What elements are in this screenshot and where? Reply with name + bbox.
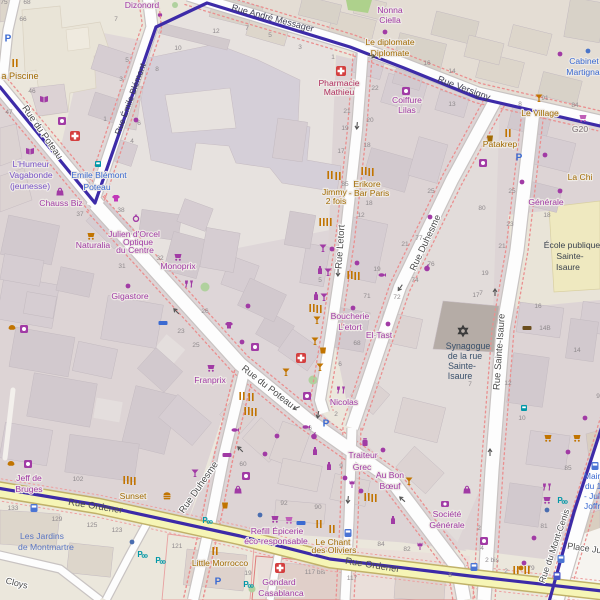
svg-text:Au Bon: Au Bon bbox=[376, 470, 404, 480]
svg-text:Boucherie: Boucherie bbox=[331, 311, 370, 321]
svg-text:Emile Blémont: Emile Blémont bbox=[71, 170, 127, 180]
svg-text:85: 85 bbox=[341, 181, 349, 188]
svg-text:Monoprix: Monoprix bbox=[160, 261, 196, 271]
svg-text:17: 17 bbox=[337, 148, 345, 155]
svg-text:8: 8 bbox=[155, 66, 159, 73]
svg-text:Gigastore: Gigastore bbox=[111, 291, 148, 301]
svg-text:60: 60 bbox=[239, 461, 247, 468]
svg-text:Traiteur: Traiteur bbox=[348, 450, 377, 460]
svg-text:2: 2 bbox=[504, 568, 508, 575]
svg-text:18: 18 bbox=[365, 200, 373, 207]
svg-text:P: P bbox=[137, 550, 143, 559]
svg-text:Grec: Grec bbox=[353, 462, 372, 472]
svg-text:Sainte-: Sainte- bbox=[448, 361, 476, 371]
svg-text:68: 68 bbox=[353, 340, 361, 347]
svg-text:1: 1 bbox=[103, 116, 107, 123]
svg-text:38: 38 bbox=[117, 207, 125, 214]
svg-text:32: 32 bbox=[156, 255, 164, 262]
svg-text:37: 37 bbox=[76, 211, 84, 218]
svg-text:Sunset: Sunset bbox=[120, 491, 147, 501]
svg-text:75: 75 bbox=[0, 0, 8, 6]
svg-text:84: 84 bbox=[377, 541, 385, 548]
svg-text:Dizonord: Dizonord bbox=[125, 0, 160, 10]
svg-text:Diplomate: Diplomate bbox=[371, 48, 410, 58]
svg-text:Société: Société bbox=[433, 509, 462, 519]
svg-text:2 bis: 2 bis bbox=[485, 557, 499, 564]
svg-text:81: 81 bbox=[540, 523, 548, 530]
svg-text:18: 18 bbox=[363, 142, 371, 149]
svg-text:du Centre: du Centre bbox=[116, 245, 154, 255]
svg-text:Générale: Générale bbox=[528, 197, 564, 207]
svg-text:Générale: Générale bbox=[429, 520, 465, 530]
svg-text:102: 102 bbox=[73, 476, 84, 483]
svg-text:77: 77 bbox=[415, 235, 423, 242]
svg-text:Mathieu: Mathieu bbox=[324, 87, 355, 97]
svg-text:25: 25 bbox=[192, 342, 200, 349]
svg-text:92: 92 bbox=[280, 500, 288, 507]
svg-text:21: 21 bbox=[401, 241, 409, 248]
svg-text:25: 25 bbox=[427, 188, 435, 195]
svg-text:Joffr: Joffr bbox=[584, 501, 600, 511]
svg-text:P: P bbox=[557, 496, 563, 505]
svg-text:46: 46 bbox=[28, 88, 36, 95]
svg-text:8: 8 bbox=[448, 572, 452, 579]
svg-text:66: 66 bbox=[19, 16, 27, 23]
svg-text:22: 22 bbox=[371, 85, 379, 92]
svg-text:3: 3 bbox=[119, 76, 123, 83]
svg-text:19: 19 bbox=[341, 125, 349, 132]
svg-text:133: 133 bbox=[8, 505, 19, 512]
svg-text:117 bis: 117 bis bbox=[305, 569, 326, 576]
svg-text:72: 72 bbox=[393, 294, 401, 301]
svg-text:Bœuf: Bœuf bbox=[379, 481, 401, 491]
svg-text:14: 14 bbox=[448, 68, 456, 75]
svg-text:68: 68 bbox=[23, 0, 31, 6]
svg-text:éco-responsable: éco-responsable bbox=[244, 536, 308, 546]
svg-text:Vagabonde: Vagabonde bbox=[9, 170, 53, 180]
svg-text:Naturalia: Naturalia bbox=[76, 240, 111, 250]
svg-text:- Jule: - Jule bbox=[584, 491, 600, 501]
svg-text:80: 80 bbox=[478, 205, 486, 212]
svg-text:84: 84 bbox=[571, 102, 579, 109]
svg-text:117: 117 bbox=[347, 575, 358, 582]
svg-text:23: 23 bbox=[506, 221, 514, 228]
svg-text:4: 4 bbox=[480, 545, 484, 552]
svg-text:21: 21 bbox=[498, 243, 506, 250]
svg-text:91: 91 bbox=[541, 95, 549, 102]
svg-text:- Bar Paris: - Bar Paris bbox=[349, 188, 390, 198]
svg-text:2 fois: 2 fois bbox=[326, 196, 347, 206]
svg-text:P: P bbox=[323, 418, 330, 429]
svg-text:L'etort: L'etort bbox=[338, 322, 362, 332]
svg-text:10: 10 bbox=[518, 415, 526, 422]
svg-text:16: 16 bbox=[423, 60, 431, 67]
svg-text:Martigna: Martigna bbox=[566, 67, 600, 77]
svg-text:Jeff de: Jeff de bbox=[16, 473, 42, 483]
svg-text:Gondard: Gondard bbox=[262, 577, 296, 587]
svg-text:4: 4 bbox=[130, 138, 134, 145]
svg-text:21: 21 bbox=[343, 108, 351, 115]
svg-text:7: 7 bbox=[468, 381, 472, 388]
svg-text:G20: G20 bbox=[572, 124, 588, 134]
svg-text:47: 47 bbox=[5, 109, 13, 116]
svg-text:Isaure: Isaure bbox=[556, 262, 580, 272]
svg-text:(jeunesse): (jeunesse) bbox=[10, 181, 50, 191]
svg-text:12: 12 bbox=[212, 28, 220, 35]
svg-text:L'Humeur: L'Humeur bbox=[13, 159, 50, 169]
svg-text:6: 6 bbox=[308, 425, 312, 432]
svg-text:2: 2 bbox=[477, 525, 481, 532]
svg-text:de la rue: de la rue bbox=[448, 351, 482, 361]
svg-text:Synagogue: Synagogue bbox=[446, 341, 491, 351]
svg-text:25: 25 bbox=[508, 188, 516, 195]
svg-text:Nicolas: Nicolas bbox=[330, 397, 358, 407]
svg-text:Lilas: Lilas bbox=[398, 105, 416, 115]
svg-text:Mair: Mair bbox=[584, 471, 600, 481]
svg-text:Little Morrocco: Little Morrocco bbox=[192, 558, 249, 568]
svg-text:P: P bbox=[5, 33, 12, 44]
svg-text:23: 23 bbox=[177, 328, 185, 335]
svg-text:du 1: du 1 bbox=[585, 481, 600, 491]
svg-text:7: 7 bbox=[479, 290, 483, 297]
svg-text:École publique: École publique bbox=[544, 240, 600, 250]
svg-text:13: 13 bbox=[448, 101, 456, 108]
svg-text:19: 19 bbox=[481, 270, 489, 277]
svg-text:La Chi: La Chi bbox=[568, 172, 593, 182]
svg-text:Isaure: Isaure bbox=[448, 371, 473, 381]
svg-text:Poteau: Poteau bbox=[83, 182, 110, 192]
svg-text:9: 9 bbox=[596, 393, 600, 400]
svg-text:Nonna: Nonna bbox=[377, 5, 403, 15]
svg-text:31: 31 bbox=[118, 263, 126, 270]
svg-text:20: 20 bbox=[366, 117, 374, 124]
svg-text:Le diplomate: Le diplomate bbox=[365, 37, 414, 47]
svg-text:7: 7 bbox=[114, 16, 118, 23]
svg-text:Refill Épicerie: Refill Épicerie bbox=[251, 526, 304, 536]
svg-text:Casablanca: Casablanca bbox=[258, 588, 304, 598]
svg-text:de Montmartre: de Montmartre bbox=[18, 542, 74, 552]
svg-text:5: 5 bbox=[318, 277, 322, 284]
svg-text:19: 19 bbox=[244, 570, 252, 577]
svg-text:71: 71 bbox=[363, 293, 371, 300]
svg-text:17: 17 bbox=[472, 292, 480, 299]
svg-text:Ciella: Ciella bbox=[379, 15, 401, 25]
svg-text:Cabinet: Cabinet bbox=[569, 56, 599, 66]
svg-text:121: 121 bbox=[172, 543, 183, 550]
svg-text:P: P bbox=[243, 580, 249, 589]
svg-text:P: P bbox=[215, 576, 222, 587]
svg-text:Franprix: Franprix bbox=[194, 375, 226, 385]
svg-text:74: 74 bbox=[411, 277, 419, 284]
svg-text:14B: 14B bbox=[539, 325, 551, 332]
svg-text:3: 3 bbox=[298, 44, 302, 51]
svg-text:125: 125 bbox=[87, 522, 98, 529]
svg-text:90: 90 bbox=[314, 504, 322, 511]
svg-text:26: 26 bbox=[201, 308, 209, 315]
svg-text:123: 123 bbox=[112, 527, 123, 534]
svg-text:14: 14 bbox=[573, 347, 581, 354]
svg-text:P: P bbox=[202, 516, 208, 525]
svg-text:5: 5 bbox=[125, 57, 129, 64]
svg-text:1: 1 bbox=[331, 54, 335, 61]
svg-text:Chauss Biz: Chauss Biz bbox=[39, 198, 82, 208]
svg-text:10: 10 bbox=[174, 45, 182, 52]
svg-text:Coiffure: Coiffure bbox=[392, 95, 422, 105]
svg-text:9: 9 bbox=[339, 463, 343, 470]
svg-text:des Oliviers: des Oliviers bbox=[312, 545, 357, 555]
svg-text:Sainte-: Sainte- bbox=[556, 251, 583, 261]
svg-text:P: P bbox=[516, 152, 523, 163]
svg-text:12: 12 bbox=[357, 212, 365, 219]
svg-text:18: 18 bbox=[543, 212, 551, 219]
svg-text:Les Jardins: Les Jardins bbox=[20, 531, 64, 541]
svg-text:5: 5 bbox=[268, 32, 272, 39]
svg-text:6: 6 bbox=[338, 361, 342, 368]
svg-text:19: 19 bbox=[373, 266, 381, 273]
svg-text:12: 12 bbox=[504, 380, 512, 387]
svg-text:Le Village: Le Village bbox=[521, 108, 559, 118]
svg-text:8: 8 bbox=[518, 101, 522, 108]
svg-text:82: 82 bbox=[403, 546, 411, 553]
svg-text:85: 85 bbox=[564, 465, 572, 472]
svg-text:P: P bbox=[155, 556, 161, 565]
svg-text:Bruges: Bruges bbox=[15, 484, 42, 494]
svg-text:El·Tast: El·Tast bbox=[366, 330, 393, 340]
svg-text:a Piscine: a Piscine bbox=[1, 71, 38, 81]
svg-text:16: 16 bbox=[534, 303, 542, 310]
svg-text:129: 129 bbox=[52, 516, 63, 523]
svg-text:7: 7 bbox=[245, 25, 249, 32]
svg-text:2: 2 bbox=[334, 411, 338, 418]
